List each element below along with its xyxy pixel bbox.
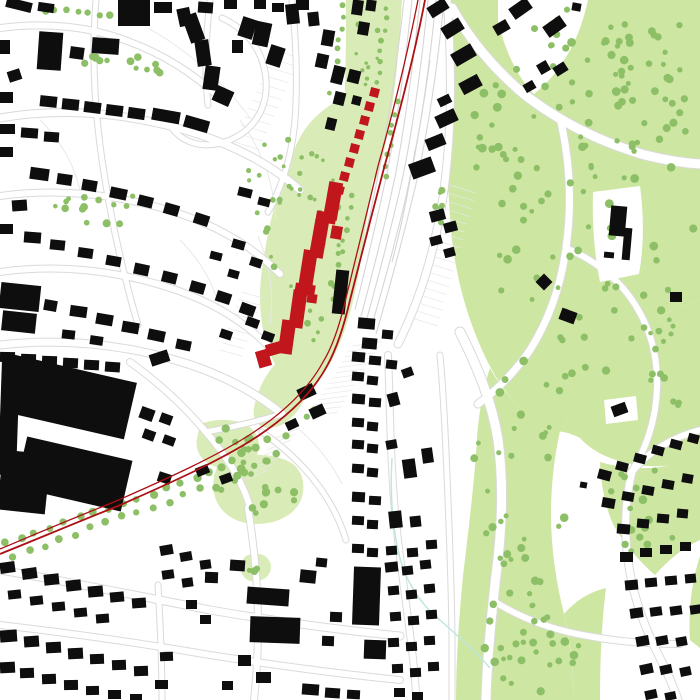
tree-dot — [503, 156, 509, 162]
building-footprint — [0, 629, 17, 642]
tree-dot — [218, 463, 226, 471]
tree-dot — [676, 22, 682, 28]
tree-dot — [384, 6, 389, 11]
tree-dot — [531, 577, 539, 585]
building-footprint — [369, 496, 381, 506]
tree-dot — [621, 473, 628, 480]
tree-dot — [116, 220, 123, 227]
building-footprint — [24, 231, 42, 243]
tree-dot — [568, 369, 576, 377]
tree-dot — [521, 554, 529, 562]
tree-dot — [677, 67, 682, 72]
tree-dot — [477, 134, 484, 141]
tree-dot — [502, 376, 509, 383]
building-footprint — [352, 567, 381, 626]
building-footprint — [105, 361, 121, 372]
building-footprint — [388, 638, 399, 648]
building-footprint — [677, 509, 689, 519]
tree-dot — [378, 38, 384, 44]
building-footprint — [385, 561, 399, 572]
tree-dot — [335, 58, 341, 64]
building-footprint — [358, 317, 376, 329]
tree-dot — [490, 657, 499, 666]
building-footprint — [362, 337, 378, 349]
building-footprint — [369, 355, 382, 365]
tree-dot — [514, 171, 522, 179]
tree-dot — [529, 603, 534, 608]
tree-dot — [81, 194, 88, 201]
tree-dot — [470, 454, 478, 462]
tree-dot — [80, 203, 88, 211]
building-footprint — [367, 375, 379, 385]
tree-dot — [101, 518, 109, 526]
tree-dot — [97, 12, 103, 18]
building-footprint — [69, 305, 87, 318]
building-footprint — [657, 513, 670, 523]
tree-dot — [432, 203, 439, 210]
tree-dot — [583, 143, 589, 149]
tree-dot — [103, 219, 111, 227]
tree-dot — [313, 198, 317, 202]
building-footprint — [352, 394, 366, 405]
building-footprint — [50, 239, 66, 251]
building-footprint — [307, 11, 319, 26]
tree-dot — [648, 378, 653, 383]
tree-dot — [297, 193, 301, 197]
tree-dot — [570, 99, 575, 104]
building-footprint — [428, 662, 439, 671]
building-footprint — [21, 567, 37, 580]
tree-dot — [304, 320, 311, 327]
building-footprint — [424, 636, 435, 646]
tree-dot — [321, 158, 325, 162]
building-footprint — [685, 574, 697, 584]
tree-dot — [613, 72, 618, 77]
tree-dot — [512, 245, 521, 254]
tree-dot — [493, 103, 502, 112]
tree-dot — [377, 48, 382, 53]
tree-dot — [582, 364, 589, 371]
tree-dot — [636, 534, 643, 541]
building-footprint — [69, 46, 85, 60]
tree-dot — [339, 26, 344, 31]
building-footprint — [83, 101, 101, 114]
tree-dot — [689, 224, 697, 232]
tree-dot — [285, 137, 291, 143]
building-footprint — [64, 680, 78, 690]
building-footprint — [420, 559, 432, 569]
building-footprint — [0, 224, 13, 234]
building-footprint — [0, 662, 15, 674]
building-footprint — [285, 3, 300, 24]
building-footprint — [0, 40, 10, 54]
tree-dot — [104, 58, 110, 64]
tree-dot — [498, 287, 504, 293]
building-footprint — [649, 606, 662, 617]
tree-dot — [299, 155, 304, 160]
tree-dot — [602, 366, 610, 374]
tree-dot — [264, 458, 271, 465]
building-footprint — [0, 124, 15, 134]
building-footprint — [665, 575, 678, 585]
tree-dot — [251, 463, 257, 469]
building-footprint — [62, 329, 76, 339]
tree-dot — [547, 425, 552, 430]
tree-dot — [562, 44, 569, 51]
tree-dot — [304, 414, 310, 420]
tree-dot — [384, 15, 389, 20]
tree-dot — [297, 171, 302, 176]
building-footprint — [254, 0, 266, 9]
building-footprint — [410, 668, 421, 677]
tree-dot — [614, 102, 622, 110]
tree-dot — [496, 450, 501, 455]
tree-dot — [503, 255, 512, 264]
tree-dot — [263, 435, 271, 443]
tree-dot — [669, 100, 676, 107]
building-footprint — [680, 542, 691, 551]
building-footprint — [108, 690, 121, 699]
building-footprint — [77, 247, 93, 259]
building-footprint — [12, 199, 28, 211]
tree-dot — [327, 91, 332, 96]
building-footprint — [402, 458, 418, 479]
tree-dot — [272, 450, 280, 458]
tree-dot — [9, 553, 16, 560]
proposed-building-footprint — [330, 225, 343, 240]
building-footprint — [426, 610, 438, 620]
tree-dot — [518, 656, 526, 664]
tree-dot — [543, 430, 548, 435]
tree-dot — [641, 324, 648, 331]
building-footprint — [112, 660, 126, 670]
building-footprint — [645, 577, 658, 587]
building-footprint — [424, 584, 436, 594]
tree-dot — [176, 479, 183, 486]
building-footprint — [325, 687, 341, 698]
tree-dot — [237, 464, 246, 473]
tree-dot — [518, 156, 525, 163]
tree-dot — [593, 174, 598, 179]
tree-dot — [364, 83, 368, 87]
building-footprint — [134, 666, 148, 676]
tree-dot — [570, 651, 579, 660]
tree-dot — [375, 28, 381, 34]
building-footprint — [629, 607, 643, 619]
building-footprint — [130, 694, 142, 700]
building-footprint — [392, 664, 403, 673]
building-footprint — [272, 3, 284, 12]
tree-dot — [247, 178, 251, 182]
tree-dot — [562, 373, 569, 380]
building-footprint — [409, 515, 421, 527]
building-footprint — [37, 31, 64, 71]
tree-dot — [614, 138, 619, 143]
tree-dot — [498, 200, 506, 208]
tree-dot — [611, 307, 618, 314]
tree-dot — [124, 203, 130, 209]
tree-dot — [556, 285, 561, 290]
tree-dot — [180, 491, 186, 497]
tree-dot — [133, 509, 139, 515]
tree-dot — [564, 7, 570, 13]
tree-dot — [222, 424, 230, 432]
tree-dot — [560, 513, 569, 522]
tree-dot — [498, 519, 504, 525]
tree-dot — [152, 61, 159, 68]
tree-dot — [26, 546, 34, 554]
tree-dot — [620, 56, 629, 65]
tree-dot — [228, 457, 236, 465]
tree-dot — [513, 66, 520, 73]
building-footprint — [84, 360, 100, 371]
building-footprint — [230, 559, 246, 571]
tree-dot — [533, 649, 538, 654]
tree-dot — [548, 43, 554, 49]
building-footprint — [30, 595, 44, 605]
building-footprint — [367, 548, 378, 558]
tree-dot — [264, 225, 271, 232]
building-footprint — [580, 481, 588, 488]
tree-dot — [489, 600, 497, 608]
tree-dot — [255, 210, 260, 215]
building-footprint — [90, 654, 104, 664]
building-footprint — [42, 674, 56, 684]
tree-dot — [378, 71, 383, 76]
tree-dot — [585, 57, 591, 63]
tree-dot — [652, 467, 658, 473]
tree-dot — [215, 436, 223, 444]
tree-dot — [497, 253, 502, 258]
tree-dot — [61, 205, 69, 213]
building-footprint — [299, 569, 316, 584]
building-footprint — [352, 351, 366, 362]
tree-dot — [626, 81, 631, 86]
building-footprint — [670, 292, 682, 302]
building-footprint — [232, 40, 243, 53]
tree-dot — [653, 257, 660, 264]
building-footprint — [86, 686, 99, 695]
tree-dot — [498, 645, 504, 651]
proposed-building-footprint — [306, 293, 317, 303]
building-footprint — [352, 440, 365, 450]
building-footprint — [43, 573, 59, 586]
building-footprint — [365, 0, 376, 12]
tree-dot — [134, 66, 139, 71]
tree-dot — [287, 184, 292, 189]
tree-dot — [509, 557, 514, 562]
building-footprint — [316, 557, 328, 567]
building-footprint — [63, 358, 79, 369]
tree-dot — [619, 73, 625, 79]
tree-dot — [282, 432, 289, 439]
tree-dot — [669, 119, 677, 127]
tree-dot — [275, 487, 282, 494]
tree-dot — [277, 200, 282, 205]
tree-dot — [269, 255, 273, 259]
tree-dot — [290, 488, 298, 496]
tree-dot — [344, 227, 350, 233]
building-footprint — [357, 21, 370, 36]
tree-dot — [72, 532, 79, 539]
tree-dot — [669, 535, 675, 541]
building-footprint — [367, 520, 378, 530]
tree-dot — [307, 195, 313, 201]
tree-dot — [621, 541, 628, 548]
tree-dot — [628, 335, 634, 341]
tree-dot — [663, 124, 671, 132]
building-footprint — [689, 604, 700, 614]
building-footprint — [386, 546, 398, 556]
tree-dot — [676, 109, 683, 116]
building-footprint — [118, 0, 150, 26]
building-footprint — [388, 586, 400, 596]
tree-dot — [345, 216, 350, 221]
tree-dot — [608, 24, 614, 30]
tree-dot — [118, 512, 126, 520]
tree-dot — [661, 62, 666, 67]
tree-dot — [519, 357, 528, 366]
tree-dot — [489, 122, 494, 127]
tree-dot — [86, 523, 93, 530]
tree-dot — [509, 185, 517, 193]
tree-dot — [541, 83, 549, 91]
tree-dot — [506, 590, 513, 597]
tree-dot — [668, 331, 673, 336]
tree-dot — [493, 82, 499, 88]
building-footprint — [91, 37, 119, 55]
tree-dot — [530, 297, 535, 302]
tree-dot — [271, 263, 278, 270]
building-footprint — [382, 330, 394, 340]
tree-dot — [500, 675, 506, 681]
tree-dot — [383, 174, 389, 180]
tree-dot — [585, 90, 593, 98]
tree-dot — [639, 495, 648, 504]
tree-dot — [529, 209, 534, 214]
tree-dot — [130, 193, 135, 198]
building-footprint — [604, 252, 614, 259]
building-footprint — [0, 92, 13, 103]
building-footprint — [407, 548, 419, 558]
tree-dot — [569, 79, 575, 85]
tree-dot — [557, 334, 563, 340]
building-footprint — [394, 688, 405, 697]
tree-dot — [76, 9, 82, 15]
building-footprint — [388, 510, 403, 528]
building-footprint — [675, 636, 687, 647]
tree-dot — [627, 506, 633, 512]
tree-dot — [581, 189, 586, 194]
tree-dot — [561, 637, 570, 646]
building-footprint — [617, 523, 631, 534]
tree-dot — [612, 283, 619, 290]
tree-dot — [309, 151, 314, 156]
building-footprint — [24, 635, 40, 647]
site-plan-map-viewport — [0, 0, 700, 700]
tree-dot — [507, 655, 513, 661]
tree-dot — [354, 52, 358, 56]
building-footprint — [0, 561, 16, 574]
tree-dot — [675, 402, 681, 408]
tree-dot — [520, 629, 527, 636]
tree-dot — [531, 25, 538, 32]
building-footprint — [161, 569, 174, 580]
building-footprint — [1, 310, 37, 333]
tree-dot — [630, 174, 639, 183]
tree-dot — [336, 37, 341, 42]
building-footprint — [330, 612, 342, 622]
tree-dot — [478, 144, 487, 153]
building-footprint — [367, 468, 379, 478]
building-footprint — [571, 2, 581, 11]
tree-dot — [567, 179, 574, 186]
tree-dot — [628, 65, 634, 71]
tree-dot — [260, 500, 268, 508]
tree-dot — [498, 555, 503, 560]
tree-dot — [144, 67, 150, 73]
building-footprint — [0, 352, 15, 362]
building-footprint — [68, 648, 84, 660]
tree-dot — [520, 203, 527, 210]
building-footprint — [238, 655, 251, 666]
building-footprint — [250, 616, 301, 644]
building-footprint — [155, 680, 168, 689]
tree-dot — [586, 224, 591, 229]
tree-dot — [608, 488, 614, 494]
tree-dot — [544, 614, 550, 620]
tree-dot — [640, 292, 647, 299]
tree-dot — [212, 484, 220, 492]
building-footprint — [89, 335, 103, 346]
tree-dot — [53, 204, 58, 209]
tree-dot — [366, 65, 370, 69]
tree-dot — [349, 205, 354, 210]
tree-dot — [671, 324, 676, 329]
building-footprint — [0, 282, 41, 312]
building-footprint — [186, 600, 197, 609]
tree-dot — [241, 460, 247, 466]
tree-dot — [497, 90, 506, 99]
tree-dot — [621, 85, 629, 93]
building-footprint — [160, 652, 173, 661]
tree-dot — [92, 54, 100, 62]
tree-dot — [667, 317, 672, 322]
tree-dot — [291, 497, 297, 503]
building-footprint — [421, 447, 434, 463]
tree-dot — [529, 639, 537, 647]
tree-dot — [631, 148, 636, 153]
tree-dot — [84, 9, 90, 15]
building-footprint — [44, 131, 60, 142]
tree-dot — [134, 53, 142, 61]
tree-dot — [319, 316, 325, 322]
tree-dot — [308, 309, 312, 313]
tree-dot — [547, 662, 552, 667]
tree-dot — [509, 681, 514, 686]
tree-dot — [42, 544, 49, 551]
tree-dot — [522, 537, 527, 542]
tree-dot — [374, 80, 379, 85]
tree-dot — [485, 489, 490, 494]
tree-dot — [486, 617, 493, 624]
building-footprint — [408, 616, 420, 626]
tree-dot — [556, 104, 563, 111]
tree-dot — [251, 567, 259, 575]
tree-dot — [127, 57, 135, 65]
tree-dot — [576, 643, 581, 648]
building-footprint — [352, 418, 365, 428]
